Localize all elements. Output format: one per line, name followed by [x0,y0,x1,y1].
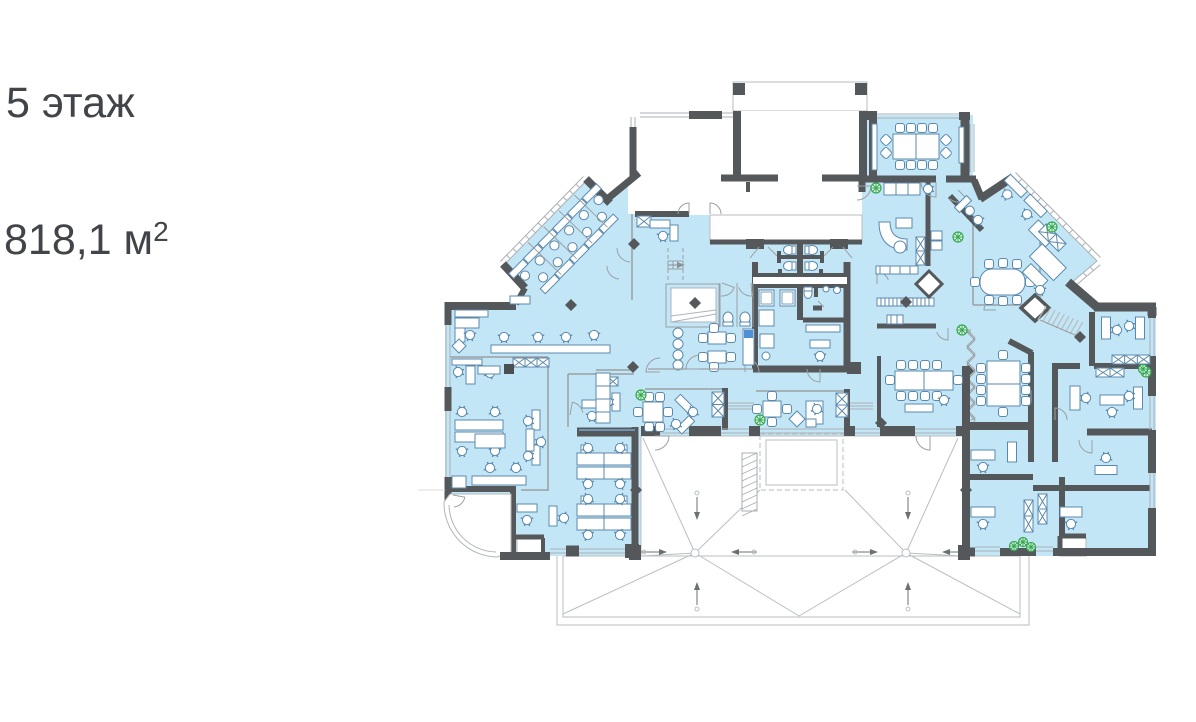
svg-text:5 этаж: 5 этаж [6,79,135,127]
svg-text:818,1 м2: 818,1 м2 [4,216,169,264]
